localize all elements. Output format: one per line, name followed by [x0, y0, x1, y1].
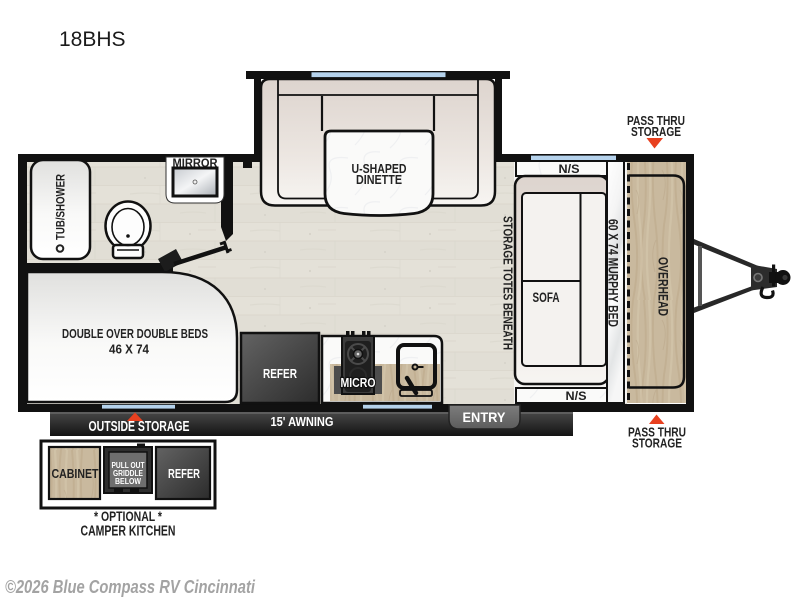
svg-text:BELOW: BELOW	[115, 477, 141, 486]
svg-text:* OPTIONAL *: * OPTIONAL *	[94, 508, 162, 524]
svg-text:SOFA: SOFA	[533, 290, 560, 305]
svg-text:60 X 74 MURPHY BED: 60 X 74 MURPHY BED	[606, 219, 622, 327]
svg-text:DINETTE: DINETTE	[356, 173, 402, 187]
svg-text:REFER: REFER	[168, 467, 200, 481]
svg-text:CABINET: CABINET	[52, 467, 99, 481]
svg-text:DOUBLE OVER DOUBLE BEDS: DOUBLE OVER DOUBLE BEDS	[62, 326, 208, 341]
svg-text:STORAGE: STORAGE	[632, 436, 682, 451]
svg-text:STORAGE TOTES BENEATH: STORAGE TOTES BENEATH	[501, 216, 516, 350]
svg-text:N/S: N/S	[559, 162, 580, 176]
svg-text:STORAGE: STORAGE	[631, 124, 681, 139]
svg-text:MICRO: MICRO	[341, 375, 376, 390]
svg-text:ENTRY: ENTRY	[463, 409, 507, 425]
svg-text:CAMPER KITCHEN: CAMPER KITCHEN	[81, 524, 176, 540]
svg-text:N/S: N/S	[566, 389, 587, 403]
svg-text:OVERHEAD: OVERHEAD	[656, 257, 671, 316]
svg-text:REFER: REFER	[263, 366, 297, 381]
svg-text:18BHS: 18BHS	[59, 28, 126, 51]
svg-text:©2026 Blue Compass RV Cincinna: ©2026 Blue Compass RV Cincinnati	[5, 576, 256, 597]
svg-text:46 X 74: 46 X 74	[109, 342, 150, 357]
svg-text:15' AWNING: 15' AWNING	[271, 414, 334, 429]
svg-text:TUB/SHOWER: TUB/SHOWER	[54, 174, 68, 240]
svg-text:OUTSIDE STORAGE: OUTSIDE STORAGE	[89, 419, 190, 435]
